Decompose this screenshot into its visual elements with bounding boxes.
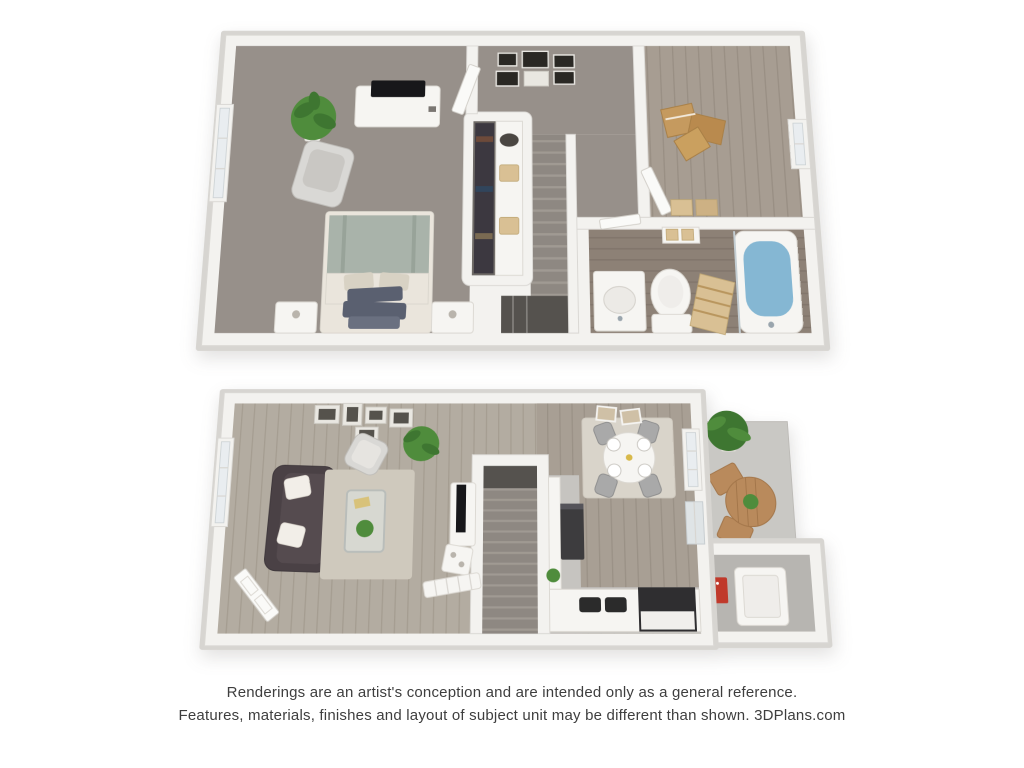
dining-area	[582, 406, 676, 498]
room2-basket-1	[671, 200, 693, 216]
room2-basket-2	[696, 200, 718, 216]
lower-staircase	[470, 455, 550, 634]
ceiling-light-1	[596, 406, 616, 421]
floor-plan-rendering-page: Renderings are an artist's conception an…	[0, 0, 1024, 768]
bed	[320, 211, 434, 333]
bathtub	[734, 231, 804, 333]
disclaimer-line2: Features, materials, finishes and layout…	[0, 704, 1024, 727]
closet-basket-1	[500, 165, 519, 181]
refrigerator	[560, 504, 584, 560]
lower-floor-plan-svg	[198, 387, 834, 652]
disclaimer-line1: Renderings are an artist's conception an…	[0, 681, 1024, 704]
toilet	[650, 269, 692, 333]
coffee-table	[344, 490, 385, 551]
sink-basin-1	[579, 597, 601, 612]
dresser-with-tv	[355, 80, 441, 126]
place-setting-1	[607, 438, 621, 451]
tv	[456, 485, 466, 533]
sofa-pillow-2	[276, 522, 306, 548]
upper-floor-plan-svg	[195, 30, 831, 352]
closet-basket-2	[499, 217, 518, 234]
side-shelf	[441, 544, 473, 576]
hall-corridor-floor	[575, 134, 638, 217]
sink-vanity	[593, 271, 646, 331]
stair-treads	[530, 134, 568, 295]
disclaimer: Renderings are an artist's conception an…	[0, 681, 1024, 727]
sink-basin-2	[605, 597, 627, 612]
place-setting-2	[637, 438, 651, 451]
place-setting-4	[638, 464, 652, 477]
tv-console	[450, 483, 476, 546]
stair-lower-flight	[501, 296, 569, 333]
stair-landing	[483, 466, 537, 489]
bath-water	[742, 241, 794, 316]
tv	[371, 80, 426, 97]
stair-treads	[482, 488, 538, 633]
second-room-window	[788, 119, 811, 168]
place-setting-3	[607, 464, 621, 477]
closet-bag	[500, 133, 519, 146]
walk-in-closet	[462, 112, 533, 286]
hanging-clothes	[474, 123, 494, 273]
ceiling-light-2	[620, 409, 641, 425]
lower-floor-plan	[198, 387, 834, 652]
bath-wall-shelf	[662, 227, 700, 243]
upper-floor-plan	[195, 30, 831, 352]
pillow-slate-3	[348, 316, 400, 328]
pillow-slate-1	[347, 286, 402, 303]
dining-window	[682, 429, 702, 490]
sliding-door	[685, 502, 704, 544]
